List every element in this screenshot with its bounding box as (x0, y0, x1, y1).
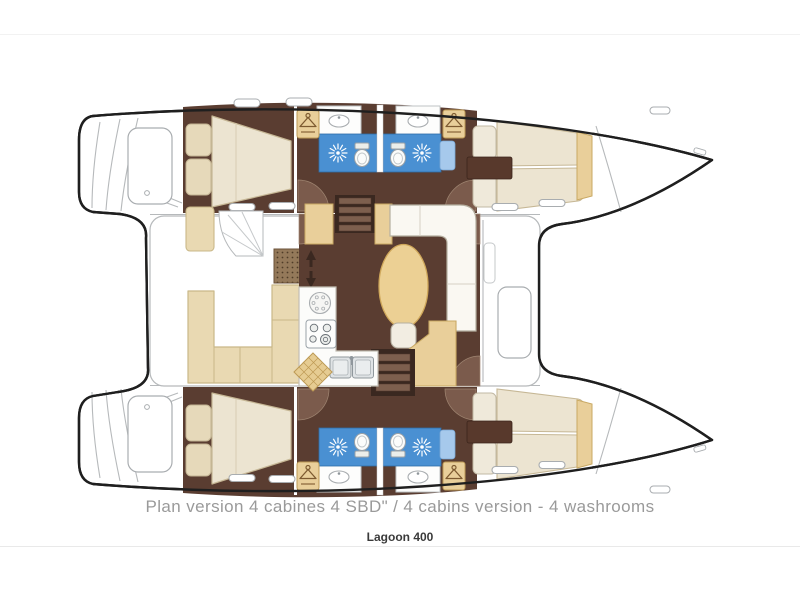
washroom-divider-wall (377, 105, 383, 172)
model-name: Lagoon 400 (0, 530, 800, 544)
cabin-door-leaf (467, 157, 512, 179)
page: Plan version 4 cabines 4 SBD" / 4 cabins… (0, 0, 800, 600)
stairs-port (335, 195, 375, 233)
toilet-icon (355, 434, 370, 458)
pillow (186, 444, 211, 476)
cockpit-grate (274, 249, 301, 283)
foredeck-hatch (498, 287, 531, 358)
window-icon (269, 203, 295, 210)
pillow (473, 126, 496, 159)
pillow (186, 405, 211, 441)
toilet-icon (355, 143, 370, 167)
window-icon (492, 204, 518, 211)
window-icon (492, 467, 518, 474)
hanger-icon (443, 110, 465, 138)
stern-hatch-port (128, 128, 172, 204)
window-icon (269, 476, 295, 483)
salon-side-seat (305, 204, 333, 244)
stern-hatch-starboard (128, 396, 172, 472)
dining-table (379, 245, 428, 328)
stove-icon (306, 320, 336, 348)
window-icon (229, 204, 255, 211)
shower-bench (440, 430, 455, 459)
sink-icon (408, 471, 428, 483)
stool (391, 323, 416, 348)
starboard-forward-cabin (467, 387, 592, 490)
round-sink-icon (310, 293, 331, 314)
window-icon (539, 200, 565, 207)
toilet-icon (391, 143, 406, 167)
hanger-icon (297, 110, 319, 138)
deck-hatch-icon (650, 486, 670, 493)
sink-icon (329, 471, 349, 483)
page-divider-bottom (0, 546, 800, 547)
pillow (186, 124, 211, 156)
deck-hatch-icon (650, 107, 670, 114)
window-icon (539, 462, 565, 469)
salon (294, 195, 480, 396)
cockpit-seat (186, 207, 214, 251)
toilet-icon (391, 434, 406, 458)
cabin-door-leaf (467, 421, 512, 443)
pillow (186, 159, 211, 195)
plan-caption: Plan version 4 cabines 4 SBD" / 4 cabins… (0, 497, 800, 517)
washroom-divider-wall (377, 428, 383, 495)
window-icon (229, 475, 255, 482)
foot-shelf (577, 132, 592, 200)
hanger-icon (297, 462, 319, 490)
shower-bench (440, 141, 455, 170)
sink-icon (408, 115, 428, 127)
deck-hatch-icon (286, 98, 312, 106)
foot-shelf (577, 400, 592, 468)
sink-icon (329, 115, 349, 127)
foredeck-locker (484, 243, 495, 283)
deck-hatch-icon (234, 99, 260, 107)
